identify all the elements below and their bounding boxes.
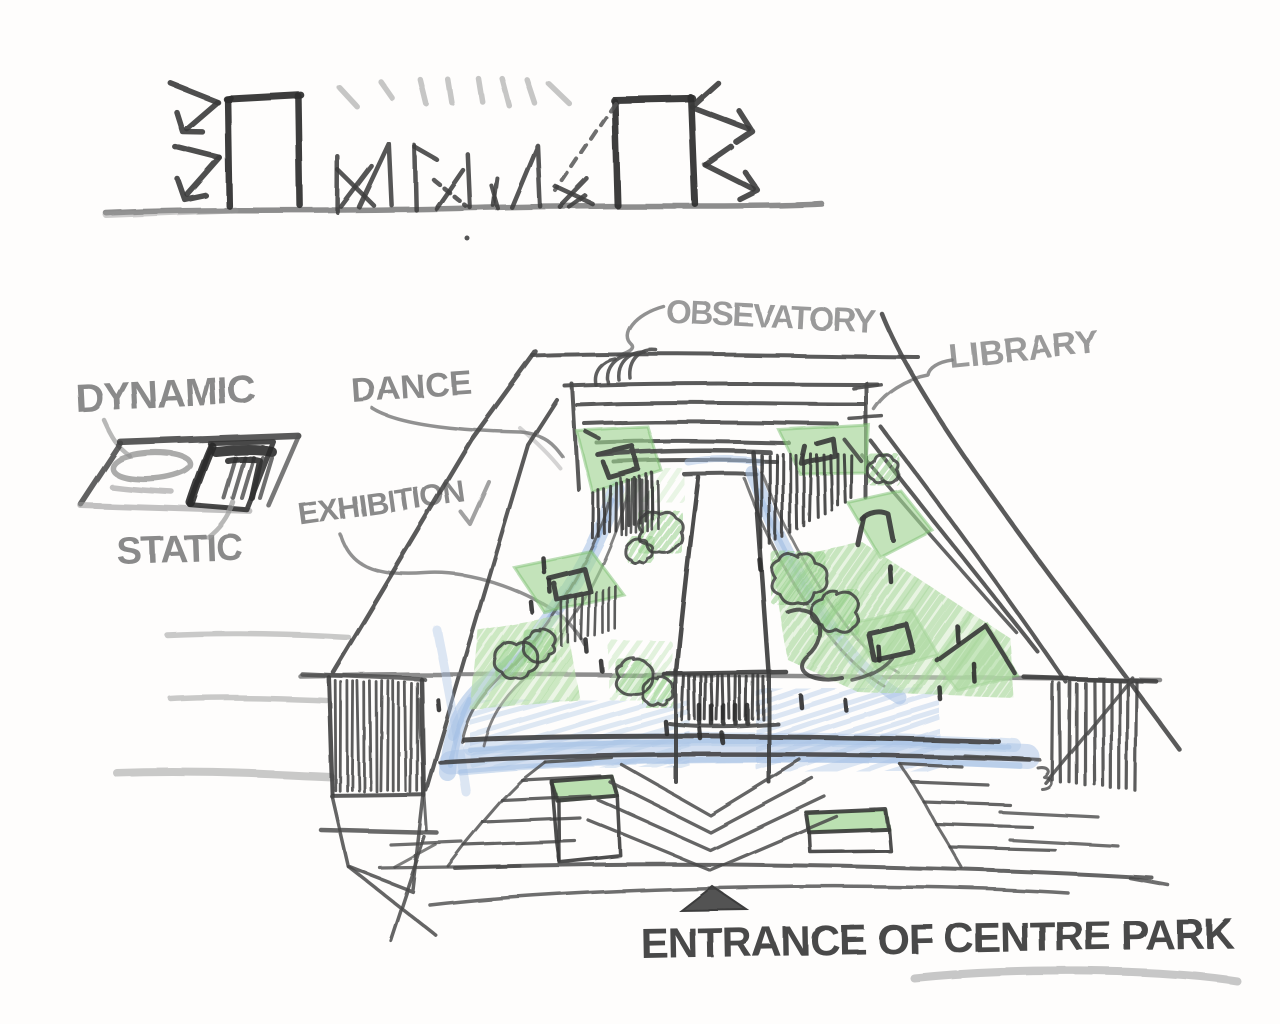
svg-text:DYNAMIC: DYNAMIC bbox=[74, 368, 256, 421]
svg-text:STATIC: STATIC bbox=[116, 527, 244, 573]
